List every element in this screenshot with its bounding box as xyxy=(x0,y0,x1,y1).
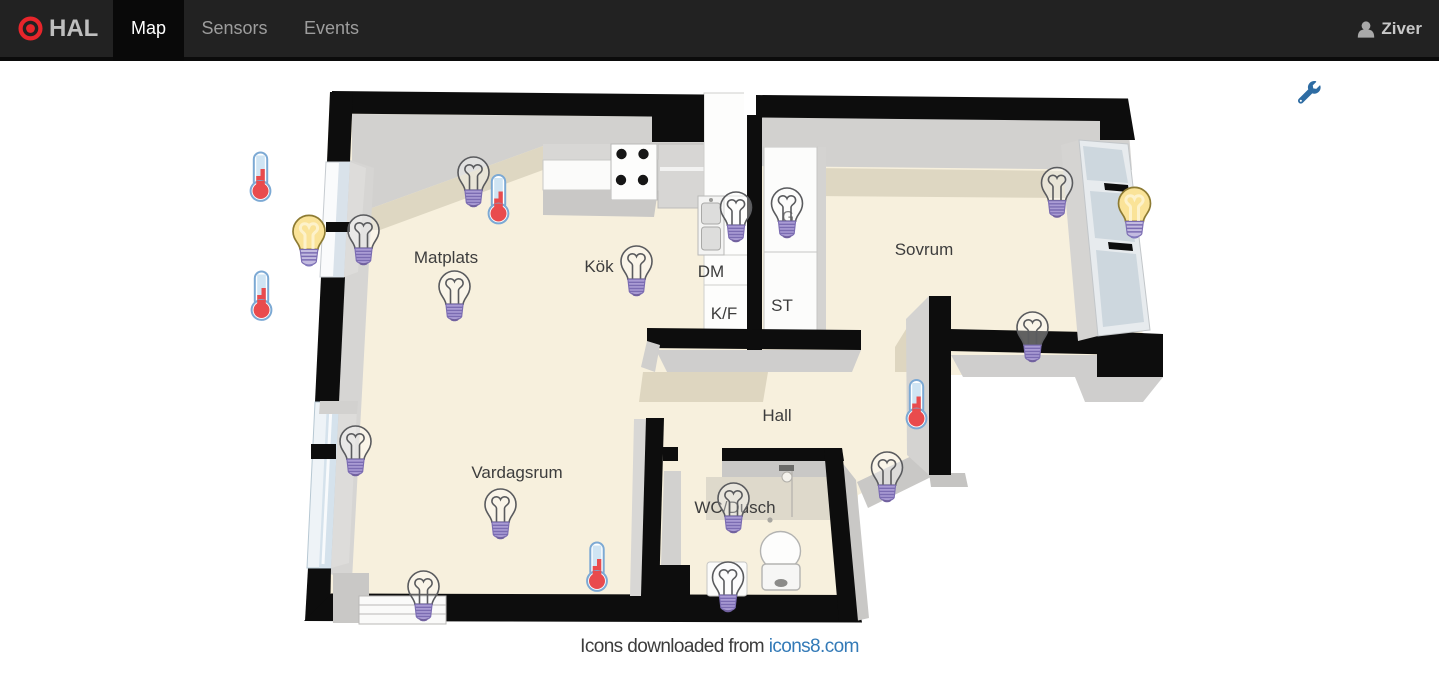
svg-text:K/F: K/F xyxy=(711,304,737,323)
svg-text:Matplats: Matplats xyxy=(414,248,478,267)
svg-text:Kök: Kök xyxy=(584,257,614,276)
svg-text:Vardagsrum: Vardagsrum xyxy=(471,463,562,482)
svg-text:Hall: Hall xyxy=(762,406,791,425)
svg-text:ST: ST xyxy=(771,296,793,315)
svg-text:Sovrum: Sovrum xyxy=(895,240,954,259)
svg-text:DM: DM xyxy=(698,262,724,281)
